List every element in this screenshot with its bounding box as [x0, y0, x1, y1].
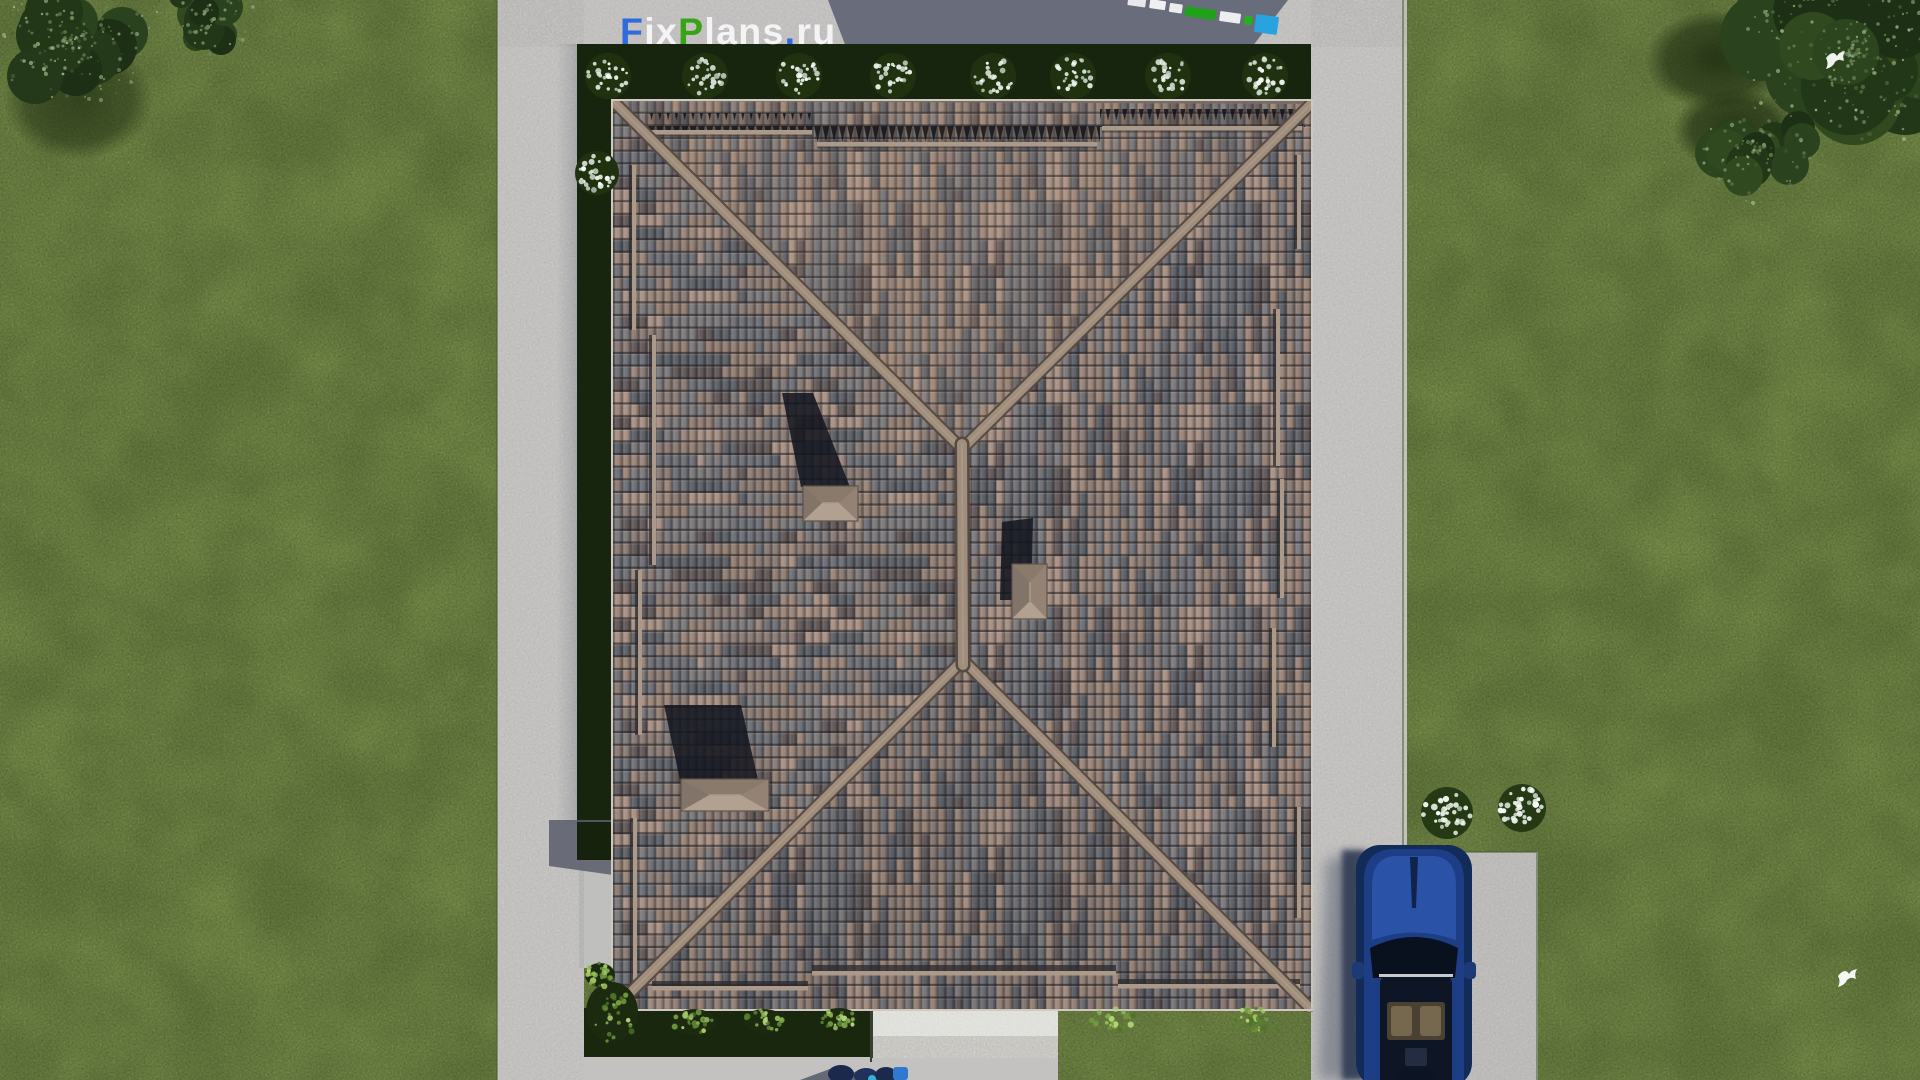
svg-text:FixPlans.ru: FixPlans.ru — [620, 10, 836, 52]
